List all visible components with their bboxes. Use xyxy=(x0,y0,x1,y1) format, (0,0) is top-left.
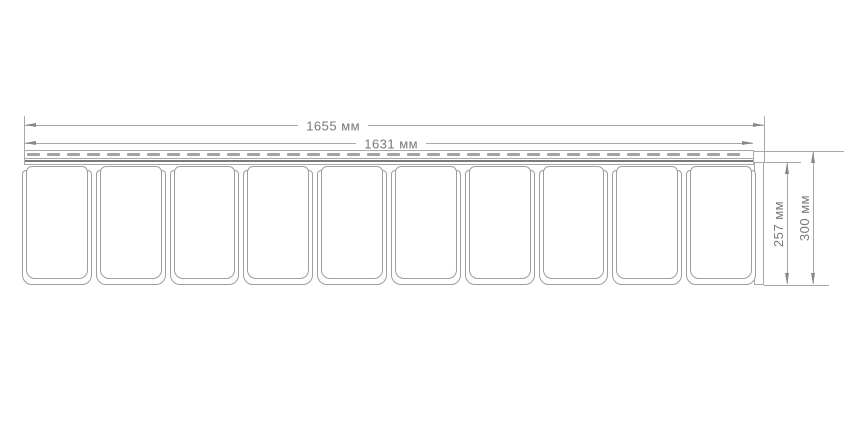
nail-slot xyxy=(287,153,300,156)
nail-slot xyxy=(687,153,700,156)
siding-panel xyxy=(321,166,383,279)
drawing-canvas: 1655 мм 1631 мм 257 мм 300 мм xyxy=(0,0,850,425)
nail-slot xyxy=(427,153,440,156)
nail-slot xyxy=(607,153,620,156)
nail-slot xyxy=(527,153,540,156)
nail-slot xyxy=(387,153,400,156)
panel-face xyxy=(321,166,383,279)
panel-face xyxy=(469,166,531,279)
nail-slot xyxy=(67,153,80,156)
nail-slot xyxy=(407,153,420,156)
siding-panel xyxy=(100,166,162,279)
nail-slot xyxy=(187,153,200,156)
dim-label-total-width: 1655 мм xyxy=(298,119,368,132)
extension-line-left xyxy=(24,116,25,151)
hem-bottom-line xyxy=(25,164,753,165)
nail-slot xyxy=(327,153,340,156)
arrow-up-icon xyxy=(811,152,815,163)
nail-slot xyxy=(647,153,660,156)
panel-face xyxy=(616,166,678,279)
dim-line-panel-height: 257 мм xyxy=(787,163,788,284)
arrow-left-icon xyxy=(25,123,36,127)
nail-slot xyxy=(367,153,380,156)
panel-face xyxy=(247,166,309,279)
nail-slot xyxy=(107,153,120,156)
extension-line-hem-right xyxy=(754,162,801,163)
nail-slot xyxy=(487,153,500,156)
arrow-down-icon xyxy=(785,273,789,284)
dim-line-visible-width: 1631 мм xyxy=(25,143,753,144)
nail-slot xyxy=(627,153,640,156)
siding-panel xyxy=(174,166,236,279)
panel-face xyxy=(543,166,605,279)
nail-slot xyxy=(127,153,140,156)
extension-line-top-right xyxy=(754,151,844,152)
panel-face xyxy=(100,166,162,279)
nail-slot xyxy=(467,153,480,156)
nail-slot xyxy=(207,153,220,156)
nail-slot xyxy=(267,153,280,156)
nail-slot xyxy=(87,153,100,156)
nail-slot xyxy=(727,153,740,156)
extension-line-right xyxy=(764,116,765,162)
nail-slot xyxy=(167,153,180,156)
nail-slot xyxy=(447,153,460,156)
extension-line-bottom-right xyxy=(764,285,829,286)
arrow-up-icon xyxy=(785,163,789,174)
dim-line-total-height: 300 мм xyxy=(813,152,814,284)
nail-slot-row xyxy=(27,153,751,156)
nail-slot xyxy=(567,153,580,156)
panel-face xyxy=(395,166,457,279)
hem-fold-line xyxy=(25,158,753,159)
nail-slot xyxy=(587,153,600,156)
siding-panel xyxy=(469,166,531,279)
siding-panel xyxy=(395,166,457,279)
panel-face xyxy=(174,166,236,279)
hem-lock-line xyxy=(25,160,753,162)
nail-slot xyxy=(47,153,60,156)
dim-line-total-width: 1655 мм xyxy=(25,125,764,126)
nail-hem-strip xyxy=(24,150,754,165)
nail-slot xyxy=(547,153,560,156)
arrow-down-icon xyxy=(811,273,815,284)
arrow-right-icon xyxy=(742,141,753,145)
siding-panel xyxy=(247,166,309,279)
nail-slot xyxy=(707,153,720,156)
nail-slot xyxy=(667,153,680,156)
nail-slot xyxy=(247,153,260,156)
nail-slot xyxy=(27,153,40,156)
arrow-left-icon xyxy=(25,141,36,145)
panel-face xyxy=(26,166,88,279)
siding-panel xyxy=(616,166,678,279)
nail-slot xyxy=(347,153,360,156)
nail-slot xyxy=(227,153,240,156)
siding-panel xyxy=(26,166,88,279)
nail-slot xyxy=(147,153,160,156)
arrow-right-icon xyxy=(753,123,764,127)
siding-panel xyxy=(690,166,752,279)
nail-slot xyxy=(507,153,520,156)
dim-label-panel-height: 257 мм xyxy=(772,192,785,254)
dim-label-visible-width: 1631 мм xyxy=(356,137,426,150)
nail-slot xyxy=(307,153,320,156)
panels-row xyxy=(26,166,752,279)
panel-face xyxy=(690,166,752,279)
siding-panel xyxy=(543,166,605,279)
dim-label-total-height: 300 мм xyxy=(798,187,811,249)
